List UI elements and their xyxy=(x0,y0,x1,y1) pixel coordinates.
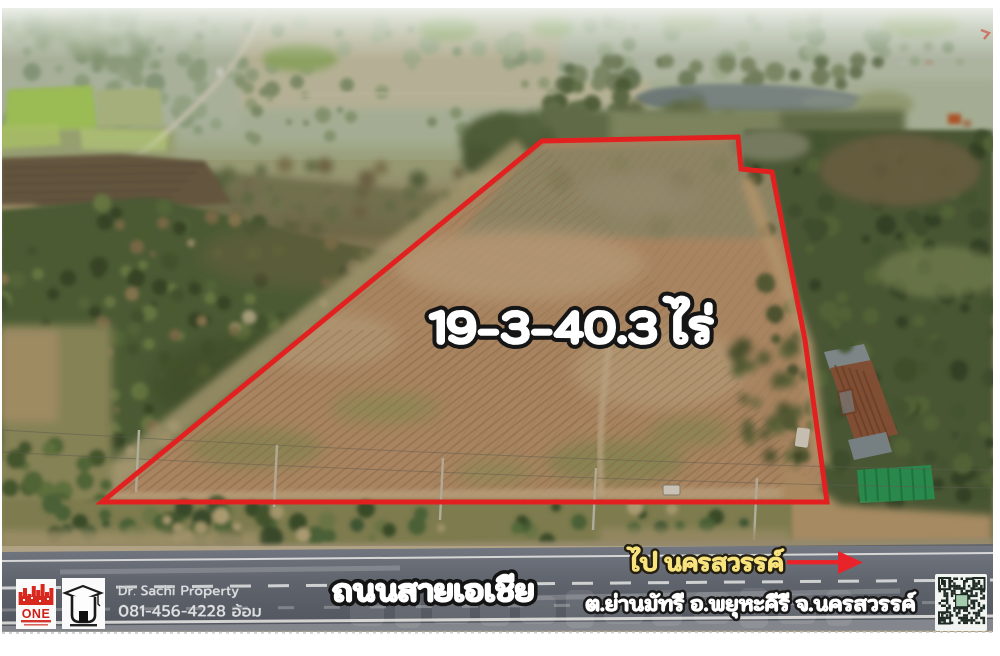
svg-text:ONE: ONE xyxy=(22,607,51,621)
